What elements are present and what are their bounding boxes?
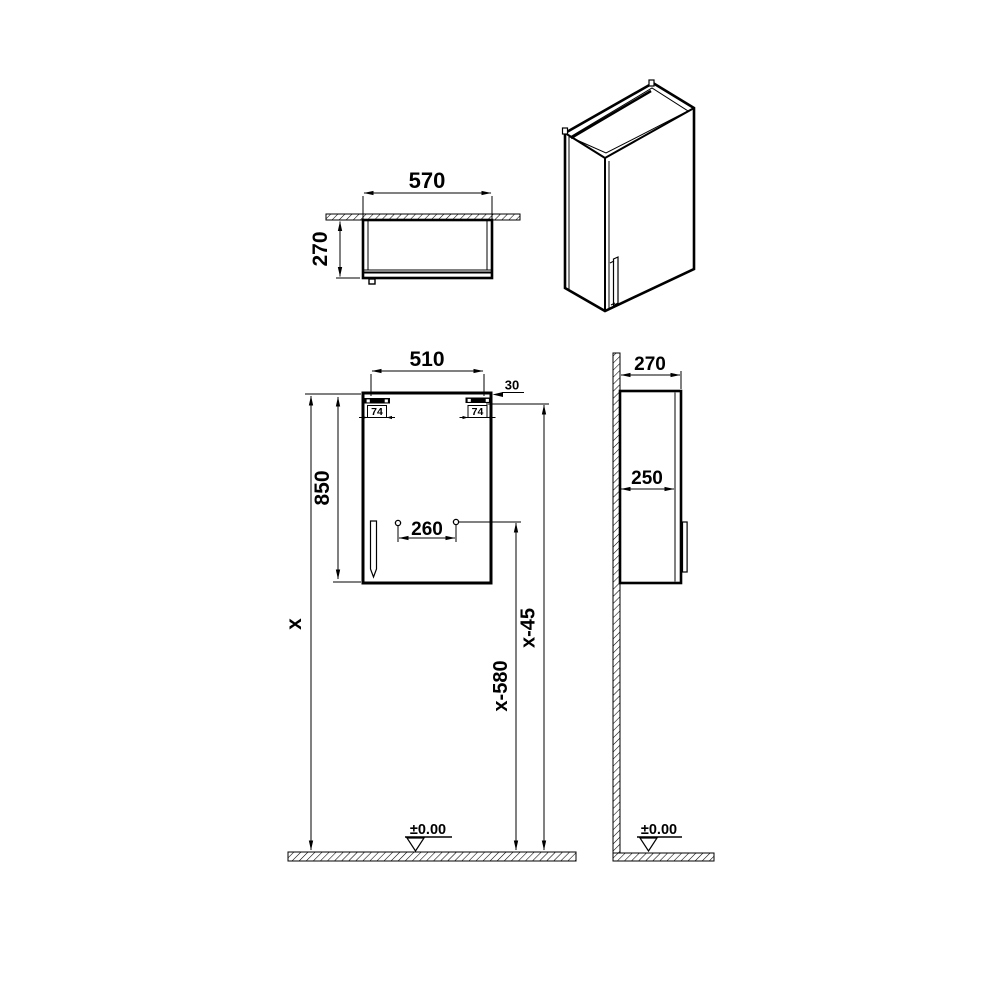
handle-bar-side: [683, 522, 688, 572]
dim-top-offset: 30: [493, 378, 525, 398]
dim-label-570: 570: [409, 168, 446, 193]
dim-hole-height: x-580: [490, 523, 516, 850]
ground-section-side: [613, 853, 714, 861]
dim-label-270-side: 270: [634, 354, 666, 375]
dim-label-30: 30: [505, 378, 519, 393]
door-handle-side: [681, 522, 687, 572]
cabinet-front: [363, 393, 491, 583]
datum-label-side: ±0.00: [641, 822, 677, 838]
dim-side-depth: 270: [621, 354, 681, 389]
datum-side: ±0.00: [637, 822, 682, 851]
bracket-notch: [385, 399, 388, 402]
cabinet-outline-iso: [565, 83, 694, 311]
datum-label-front: ±0.00: [410, 822, 446, 838]
dim-front-width: 510: [371, 348, 484, 396]
dim-label-x: x: [283, 618, 306, 630]
dim-label-74-left: 74: [371, 406, 383, 418]
dim-label-270-top: 270: [309, 231, 332, 266]
datum-triangle: [407, 838, 424, 851]
dim-top-depth: 270: [309, 222, 360, 279]
drawing-page: 570 270 74: [0, 0, 990, 990]
bracket-notch: [468, 399, 471, 402]
dim-label-x-580: x-580: [490, 660, 512, 711]
hanger-bracket-right-iso: [649, 80, 654, 86]
technical-drawing: 570 270 74: [0, 0, 990, 990]
door-handle-front: [371, 521, 377, 577]
front-view: 74 74 510 30: [283, 348, 576, 861]
dim-label-x-45: x-45: [518, 608, 540, 648]
fixing-hole-right: [453, 519, 458, 524]
side-view: 270 250 ±0.00: [613, 353, 714, 861]
leader-arrow: [493, 392, 504, 397]
dim-top-width: 570: [363, 168, 492, 219]
top-view: 570 270: [309, 168, 520, 284]
dim-label-250: 250: [631, 468, 663, 489]
dim-front-height: 850: [305, 394, 361, 582]
isometric-view: [563, 80, 695, 311]
dim-label-850: 850: [311, 470, 334, 505]
bracket-notch: [367, 399, 370, 402]
dim-label-74-right: 74: [472, 406, 484, 418]
bracket-notch: [486, 399, 489, 402]
dim-total-height: x: [283, 396, 311, 850]
dim-bracket-height: x-45: [518, 405, 545, 850]
dim-label-510: 510: [409, 348, 444, 371]
handle-bar-iso: [614, 257, 619, 306]
dim-label-260: 260: [411, 519, 443, 540]
fixing-hole-left: [395, 520, 400, 525]
ground-section-front: [288, 852, 576, 861]
door-handle-top: [369, 279, 375, 284]
datum-front: ±0.00: [405, 822, 452, 851]
datum-triangle: [640, 838, 657, 851]
hanger-bracket-left-iso: [563, 128, 568, 134]
cabinet-body-top: [363, 220, 492, 278]
